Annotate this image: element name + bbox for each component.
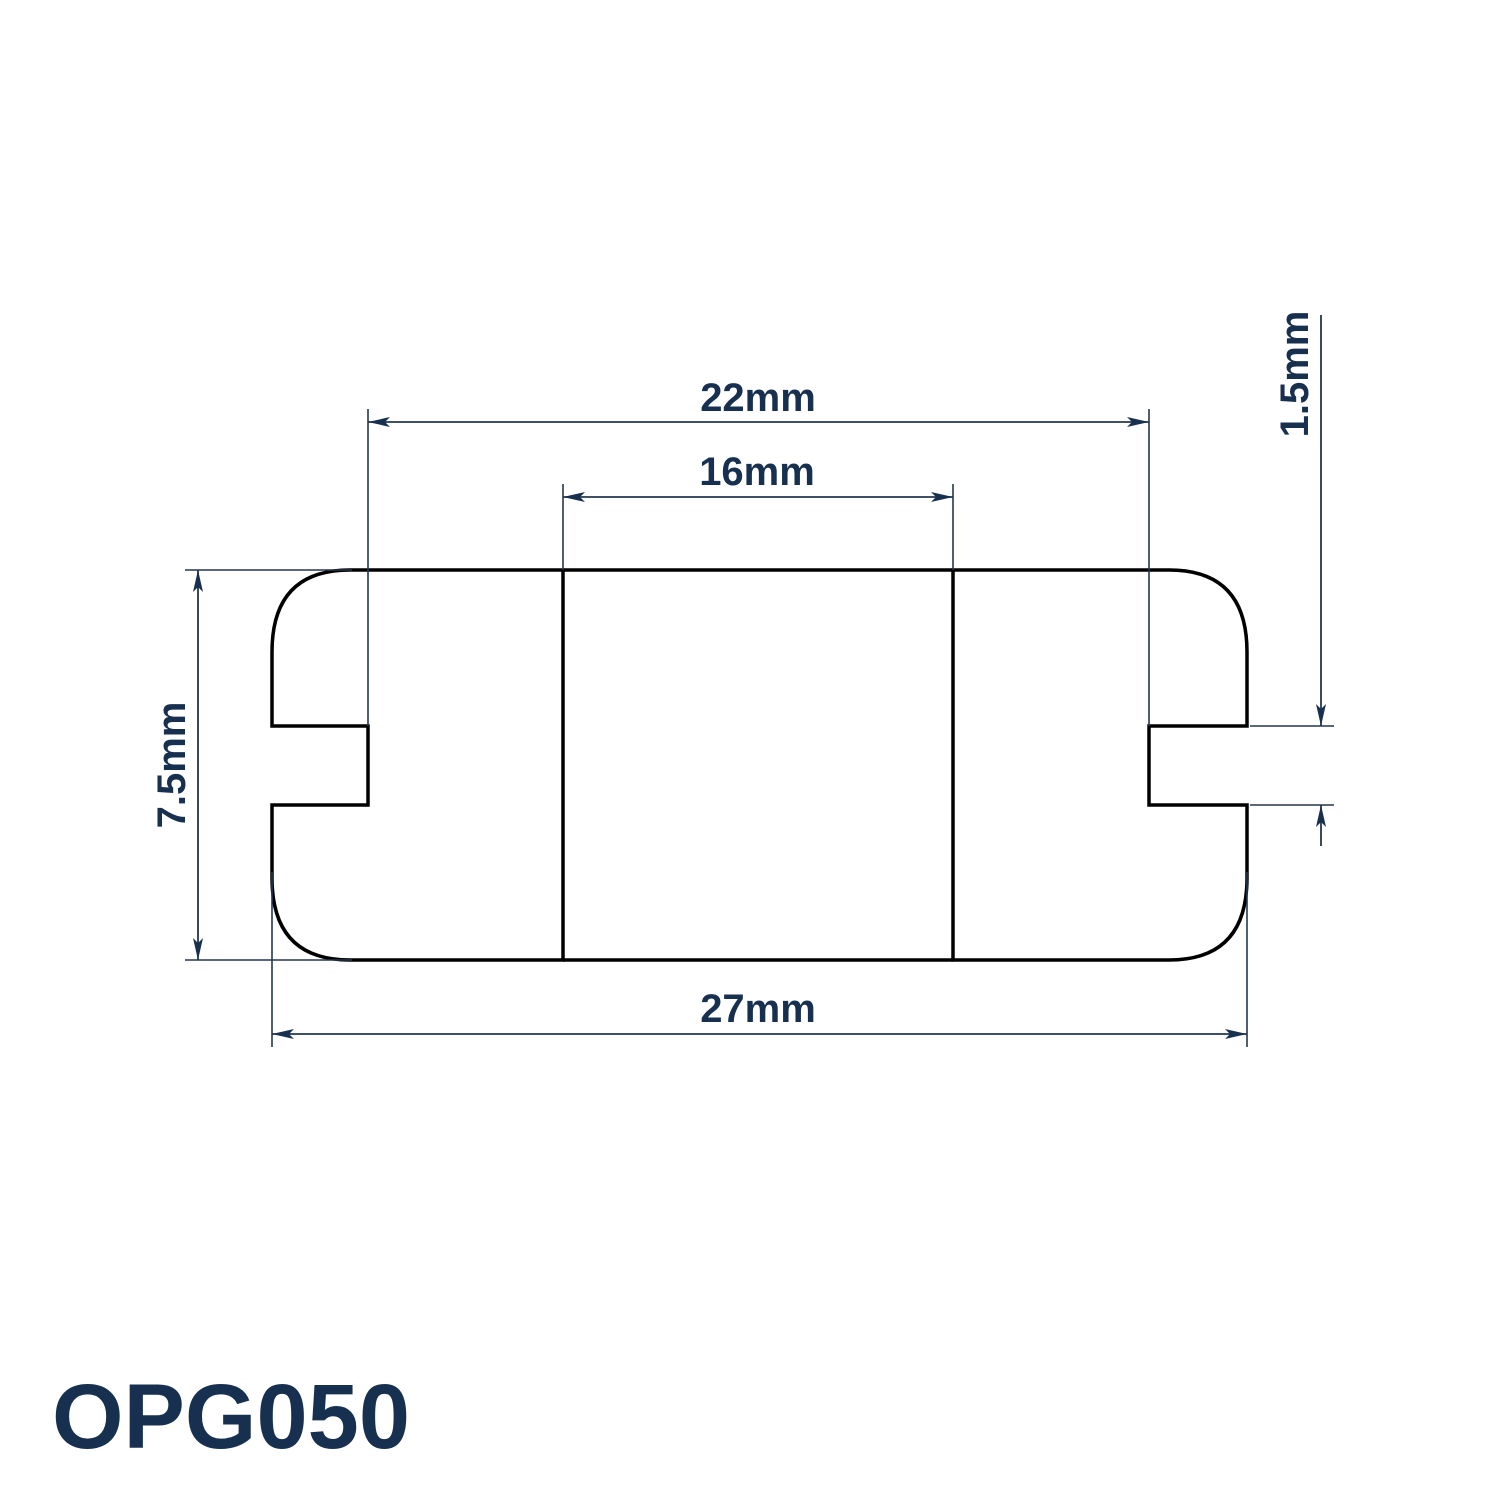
dim-label-panel-thickness: 1.5mm xyxy=(1273,311,1317,438)
dim-label-inner-diameter: 16mm xyxy=(699,450,815,494)
dimension-panel-thickness: 1.5mm xyxy=(1250,311,1334,846)
drawing-page: 22mm 16mm 7.5mm 27mm xyxy=(0,0,1500,1500)
grommet-technical-drawing: 22mm 16mm 7.5mm 27mm xyxy=(0,0,1500,1500)
grommet-cross-section xyxy=(272,570,1247,960)
dimension-overall-height: 7.5mm xyxy=(150,570,352,960)
left-flange-hatched-section xyxy=(272,570,563,960)
dim-label-overall-height: 7.5mm xyxy=(150,702,194,829)
dimension-groove-diameter: 22mm xyxy=(368,376,1149,726)
product-code-label: OPG050 xyxy=(52,1366,410,1468)
dim-label-overall-diameter: 27mm xyxy=(700,987,816,1031)
dimension-inner-diameter: 16mm xyxy=(563,450,953,570)
right-flange-hatched-section xyxy=(953,570,1247,960)
dim-label-groove-diameter: 22mm xyxy=(700,376,816,420)
